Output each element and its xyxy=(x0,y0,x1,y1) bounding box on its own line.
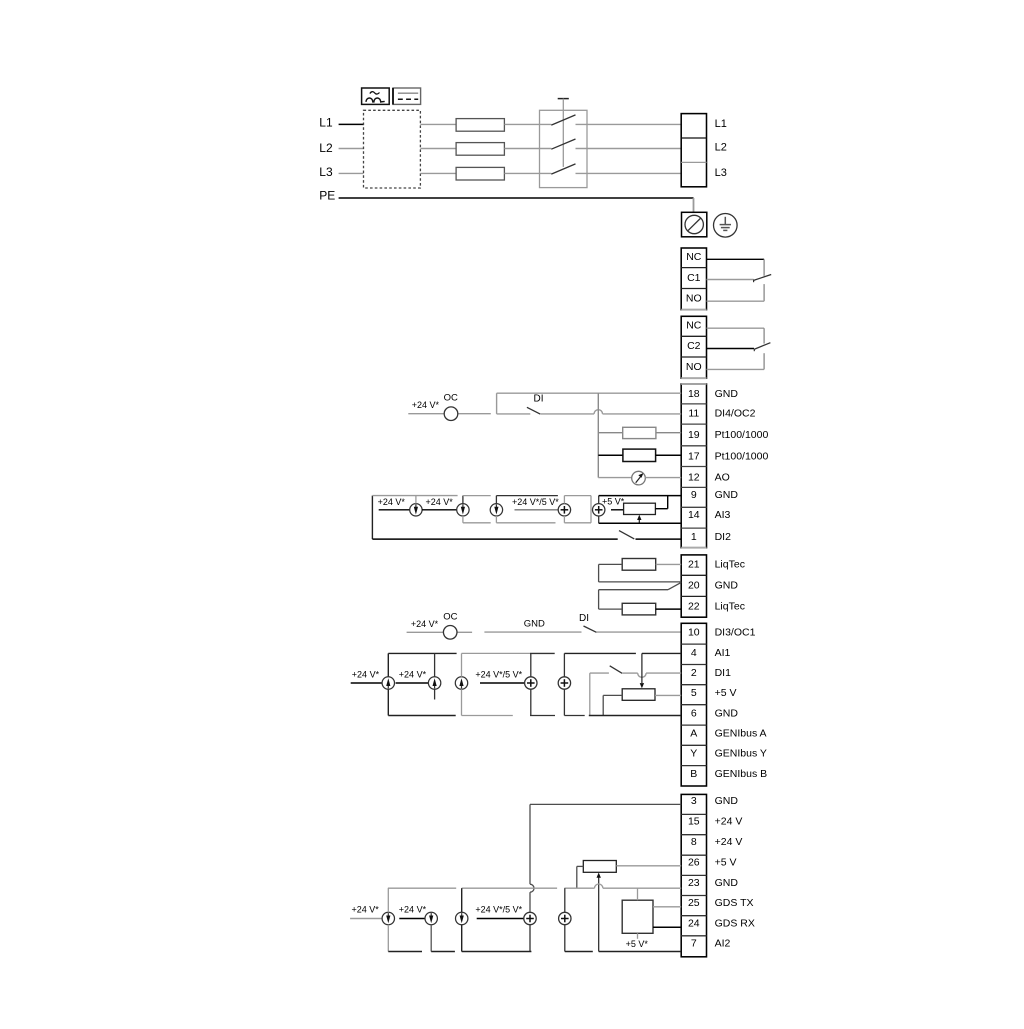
svg-text:+5 V*: +5 V* xyxy=(602,497,625,507)
svg-text:DI3/OC1: DI3/OC1 xyxy=(715,627,756,639)
svg-text:14: 14 xyxy=(688,509,700,521)
svg-text:+5 V: +5 V xyxy=(715,857,737,869)
svg-text:GDS TX: GDS TX xyxy=(715,897,754,909)
svg-text:+24 V*: +24 V* xyxy=(399,670,427,680)
svg-text:GND: GND xyxy=(524,619,545,630)
svg-text:L2: L2 xyxy=(715,142,727,154)
svg-text:26: 26 xyxy=(688,857,700,869)
svg-text:GENIbus A: GENIbus A xyxy=(715,727,767,739)
svg-text:+24 V*: +24 V* xyxy=(352,905,380,915)
svg-text:+24 V: +24 V xyxy=(715,816,743,828)
svg-text:AI2: AI2 xyxy=(715,938,731,950)
svg-text:+24 V*: +24 V* xyxy=(411,619,439,629)
svg-text:25: 25 xyxy=(688,897,700,909)
svg-text:15: 15 xyxy=(688,816,700,828)
svg-text:+24 V*/5 V*: +24 V*/5 V* xyxy=(512,497,559,507)
svg-text:GND: GND xyxy=(715,489,739,501)
svg-text:AI3: AI3 xyxy=(715,509,731,521)
svg-text:GND: GND xyxy=(715,877,739,889)
svg-text:3: 3 xyxy=(691,795,697,807)
svg-text:+24 V*: +24 V* xyxy=(426,497,454,507)
svg-text:21: 21 xyxy=(688,558,700,570)
svg-text:DI1: DI1 xyxy=(715,667,732,679)
svg-text:DI2: DI2 xyxy=(715,531,732,543)
svg-text:GND: GND xyxy=(715,707,739,719)
svg-text:B: B xyxy=(690,768,697,780)
svg-text:1: 1 xyxy=(691,531,697,543)
svg-text:GND: GND xyxy=(715,580,739,592)
svg-text:Pt100/1000: Pt100/1000 xyxy=(715,451,769,463)
svg-text:+24 V: +24 V xyxy=(715,836,743,848)
svg-text:8: 8 xyxy=(691,836,697,848)
svg-text:GENIbus Y: GENIbus Y xyxy=(715,748,767,760)
svg-text:NC: NC xyxy=(686,251,702,263)
svg-text:19: 19 xyxy=(688,429,700,441)
svg-text:AO: AO xyxy=(715,471,730,483)
svg-text:DI4/OC2: DI4/OC2 xyxy=(715,408,756,420)
svg-text:Y: Y xyxy=(690,748,697,760)
svg-text:+24 V*: +24 V* xyxy=(399,905,427,915)
svg-text:L1: L1 xyxy=(319,116,333,130)
svg-text:GND: GND xyxy=(715,388,739,400)
svg-text:+24 V*: +24 V* xyxy=(412,400,440,410)
svg-text:L3: L3 xyxy=(715,167,727,179)
svg-text:+24 V*/5 V*: +24 V*/5 V* xyxy=(475,905,522,915)
svg-text:DI: DI xyxy=(534,394,544,405)
svg-text:5: 5 xyxy=(691,687,697,699)
svg-text:10: 10 xyxy=(688,627,700,639)
svg-text:GENIbus B: GENIbus B xyxy=(715,768,768,780)
svg-text:Pt100/1000: Pt100/1000 xyxy=(715,429,769,441)
svg-text:PE: PE xyxy=(319,189,335,203)
svg-text:L2: L2 xyxy=(319,141,333,155)
svg-text:6: 6 xyxy=(691,707,697,719)
svg-text:NO: NO xyxy=(686,293,702,305)
svg-text:12: 12 xyxy=(688,471,700,483)
svg-text:NO: NO xyxy=(686,361,702,373)
svg-text:+24 V*: +24 V* xyxy=(352,670,380,680)
svg-text:C1: C1 xyxy=(687,272,701,284)
svg-text:L3: L3 xyxy=(319,165,333,179)
svg-text:17: 17 xyxy=(688,451,700,463)
svg-text:+24 V*: +24 V* xyxy=(378,497,406,507)
svg-text:L1: L1 xyxy=(715,118,727,130)
svg-text:DI: DI xyxy=(579,613,589,624)
svg-text:24: 24 xyxy=(688,917,700,929)
svg-text:9: 9 xyxy=(691,489,697,501)
svg-text:A: A xyxy=(690,727,697,739)
svg-text:LiqTec: LiqTec xyxy=(715,601,745,613)
svg-text:AI1: AI1 xyxy=(715,647,731,659)
svg-text:OC: OC xyxy=(443,612,457,623)
svg-text:22: 22 xyxy=(688,601,700,613)
svg-text:18: 18 xyxy=(688,388,700,400)
svg-text:OC: OC xyxy=(444,393,458,404)
svg-text:+5 V*: +5 V* xyxy=(626,939,649,949)
svg-text:LiqTec: LiqTec xyxy=(715,558,745,570)
svg-text:23: 23 xyxy=(688,877,700,889)
svg-text:20: 20 xyxy=(688,580,700,592)
svg-text:2: 2 xyxy=(691,667,697,679)
svg-text:+5 V: +5 V xyxy=(715,687,737,699)
svg-text:7: 7 xyxy=(691,938,697,950)
svg-text:C2: C2 xyxy=(687,340,701,352)
svg-text:11: 11 xyxy=(688,408,699,420)
svg-text:NC: NC xyxy=(686,320,702,332)
svg-text:4: 4 xyxy=(691,647,697,659)
svg-text:+24 V*/5 V*: +24 V*/5 V* xyxy=(475,670,522,680)
svg-text:GDS RX: GDS RX xyxy=(715,917,755,929)
svg-text:GND: GND xyxy=(715,795,739,807)
